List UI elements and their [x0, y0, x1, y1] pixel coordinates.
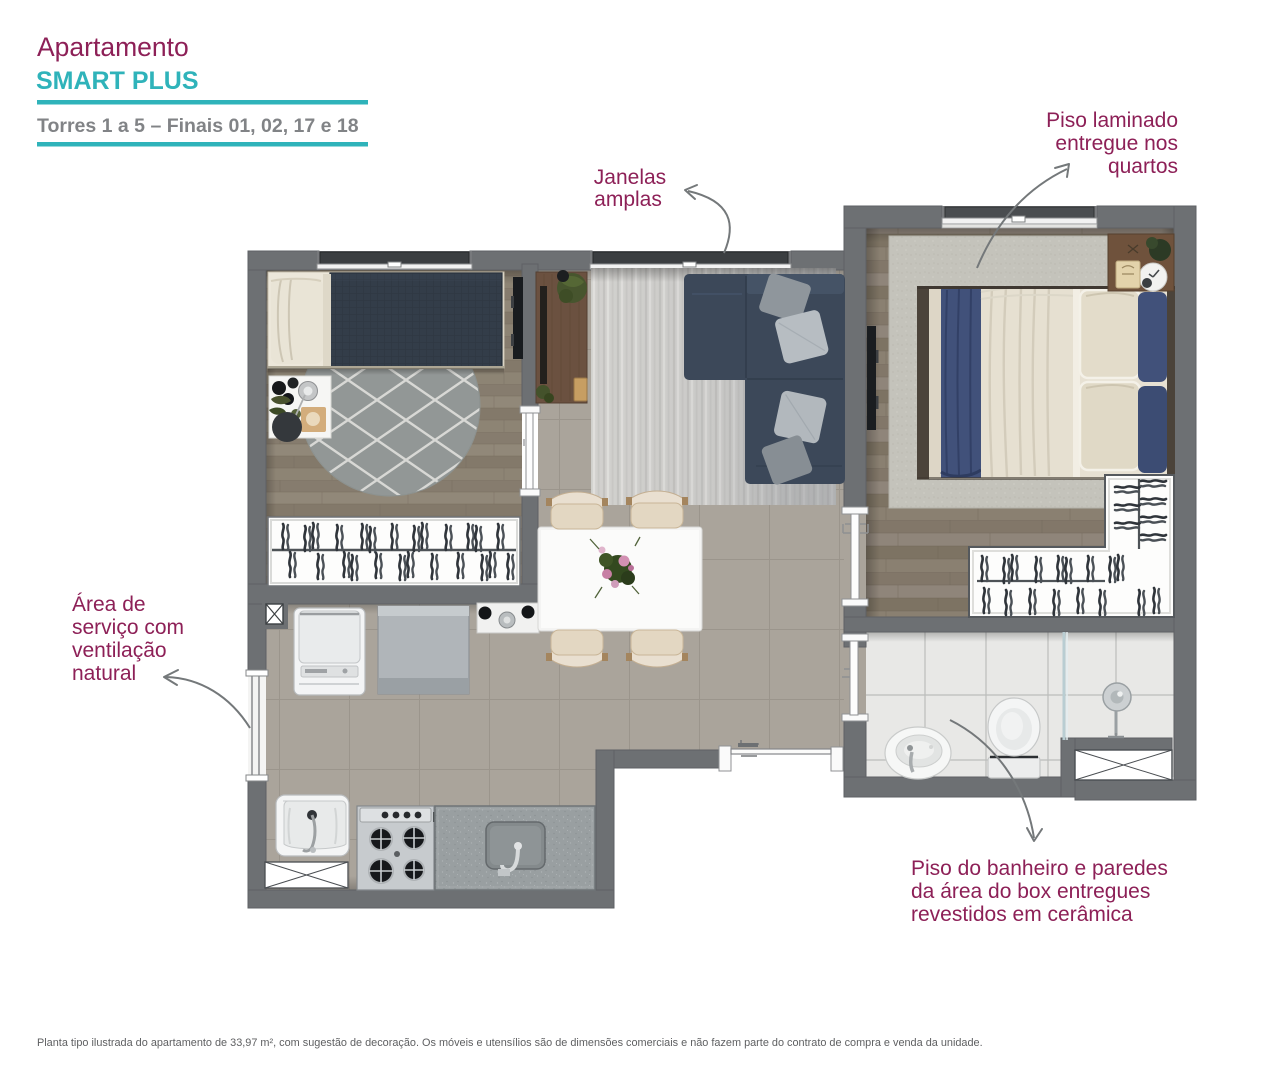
svg-text:entregue nos: entregue nos — [1055, 132, 1178, 155]
svg-text:ventilação: ventilação — [72, 639, 167, 662]
svg-text:SMART PLUS: SMART PLUS — [36, 67, 199, 95]
svg-text:Janelas: Janelas — [594, 166, 666, 189]
svg-text:Piso do banheiro e paredes: Piso do banheiro e paredes — [911, 857, 1168, 880]
svg-text:Apartamento: Apartamento — [37, 32, 189, 62]
svg-text:natural: natural — [72, 662, 136, 685]
svg-text:Área de: Área de — [72, 593, 146, 616]
svg-text:amplas: amplas — [594, 188, 662, 211]
svg-text:quartos: quartos — [1108, 155, 1178, 178]
svg-text:Piso laminado: Piso laminado — [1046, 109, 1178, 132]
svg-text:serviço com: serviço com — [72, 616, 184, 639]
svg-text:Torres 1 a 5 – Finais 01, 02,: Torres 1 a 5 – Finais 01, 02, 17 e 18 — [37, 115, 359, 137]
svg-text:da área do box entregues: da área do box entregues — [911, 880, 1150, 903]
svg-text:Planta tipo ilustrada do apart: Planta tipo ilustrada do apartamento de … — [37, 1037, 983, 1049]
svg-text:revestidos em cerâmica: revestidos em cerâmica — [911, 903, 1133, 926]
